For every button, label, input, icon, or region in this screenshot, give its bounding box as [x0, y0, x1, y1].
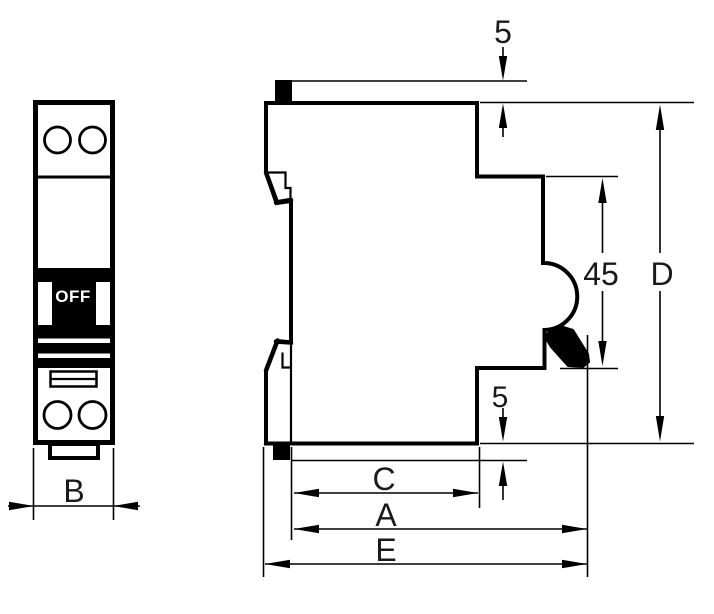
- switch-state-label: OFF: [55, 287, 91, 306]
- dim-e: E: [264, 447, 588, 577]
- arrowhead: [499, 462, 507, 487]
- arrowhead: [656, 105, 664, 131]
- arrowhead: [453, 489, 478, 497]
- din-clip-lever: [545, 326, 589, 367]
- terminal-screw-top-left: [45, 127, 71, 153]
- dim-a-label: A: [375, 497, 397, 533]
- recess-stripe-1: [38, 339, 110, 344]
- dim-e-label: E: [375, 532, 396, 568]
- breaker-body-profile: [266, 103, 577, 444]
- arrowhead: [265, 560, 290, 568]
- terminal-screw-bottom-left: [44, 402, 71, 429]
- dim-d-label: D: [650, 256, 673, 292]
- arrowhead: [113, 502, 138, 510]
- toggle-guide-left: [38, 282, 52, 325]
- arrowhead: [656, 416, 664, 442]
- dim-45-label: 45: [583, 256, 619, 292]
- terminal-screw-top-right: [80, 127, 106, 153]
- terminal-screw-bottom-right: [79, 402, 106, 429]
- dim-top-5-label: 5: [494, 14, 512, 50]
- front-view: OFF: [36, 103, 113, 459]
- arrowhead: [294, 525, 319, 533]
- front-clip-foot: [50, 444, 98, 458]
- arrowhead: [294, 489, 319, 497]
- dim-d: D: [650, 105, 673, 442]
- arrowhead: [598, 341, 606, 366]
- side-view: [266, 80, 589, 460]
- arrowhead: [499, 417, 507, 442]
- dim-bottom-5-label: 5: [492, 381, 509, 414]
- arrowhead: [598, 178, 606, 203]
- dim-c-label: C: [372, 461, 395, 497]
- dim-b-label: B: [63, 473, 84, 509]
- recess-stripe-2: [38, 354, 110, 359]
- arrowhead: [9, 502, 34, 510]
- dimensional-drawing: OFF B: [0, 0, 714, 614]
- arrowhead: [562, 525, 587, 533]
- arrowhead: [562, 560, 587, 568]
- arrowhead: [499, 56, 507, 81]
- drawing-canvas: OFF B: [0, 0, 714, 614]
- top-din-tab: [275, 80, 292, 104]
- toggle-guide-right: [96, 282, 110, 325]
- bottom-foot: [273, 444, 290, 460]
- arrowhead: [499, 104, 507, 129]
